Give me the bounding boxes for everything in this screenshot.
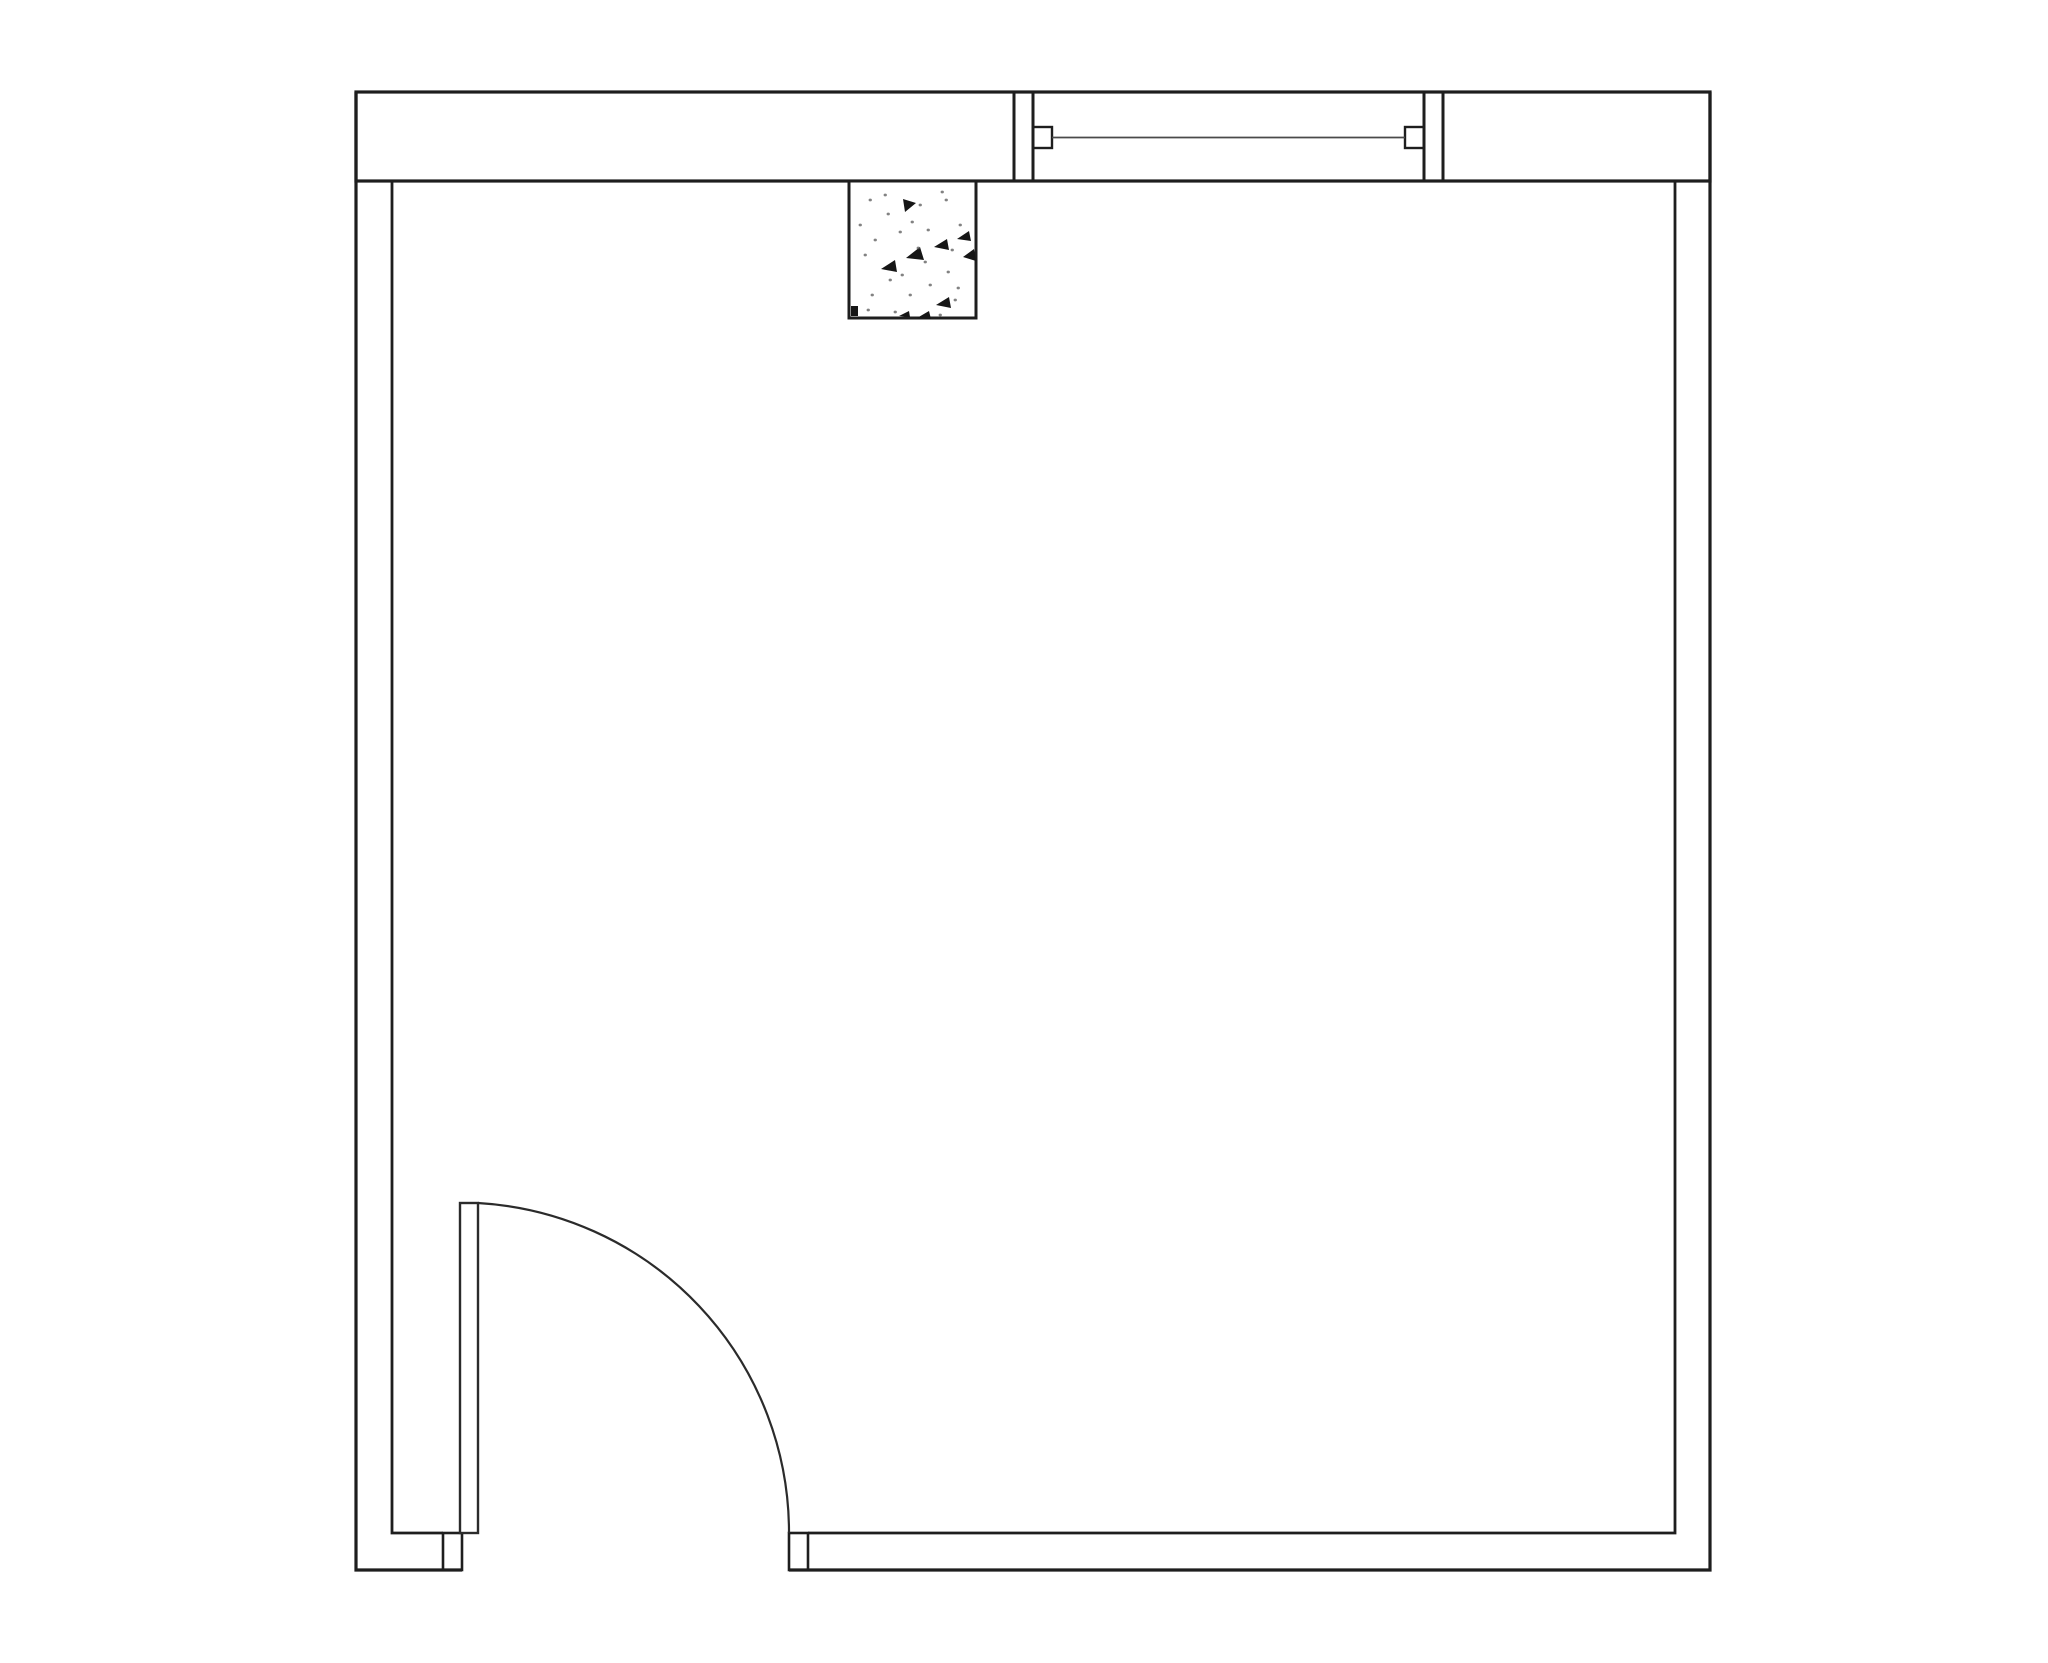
door-leaf <box>460 1203 478 1533</box>
floor-plan-page <box>0 0 2048 1663</box>
concrete-column-outline <box>849 181 976 318</box>
concrete-column <box>849 181 976 319</box>
floor-plan-canvas <box>0 0 2048 1663</box>
canvas-background <box>0 0 2048 1663</box>
